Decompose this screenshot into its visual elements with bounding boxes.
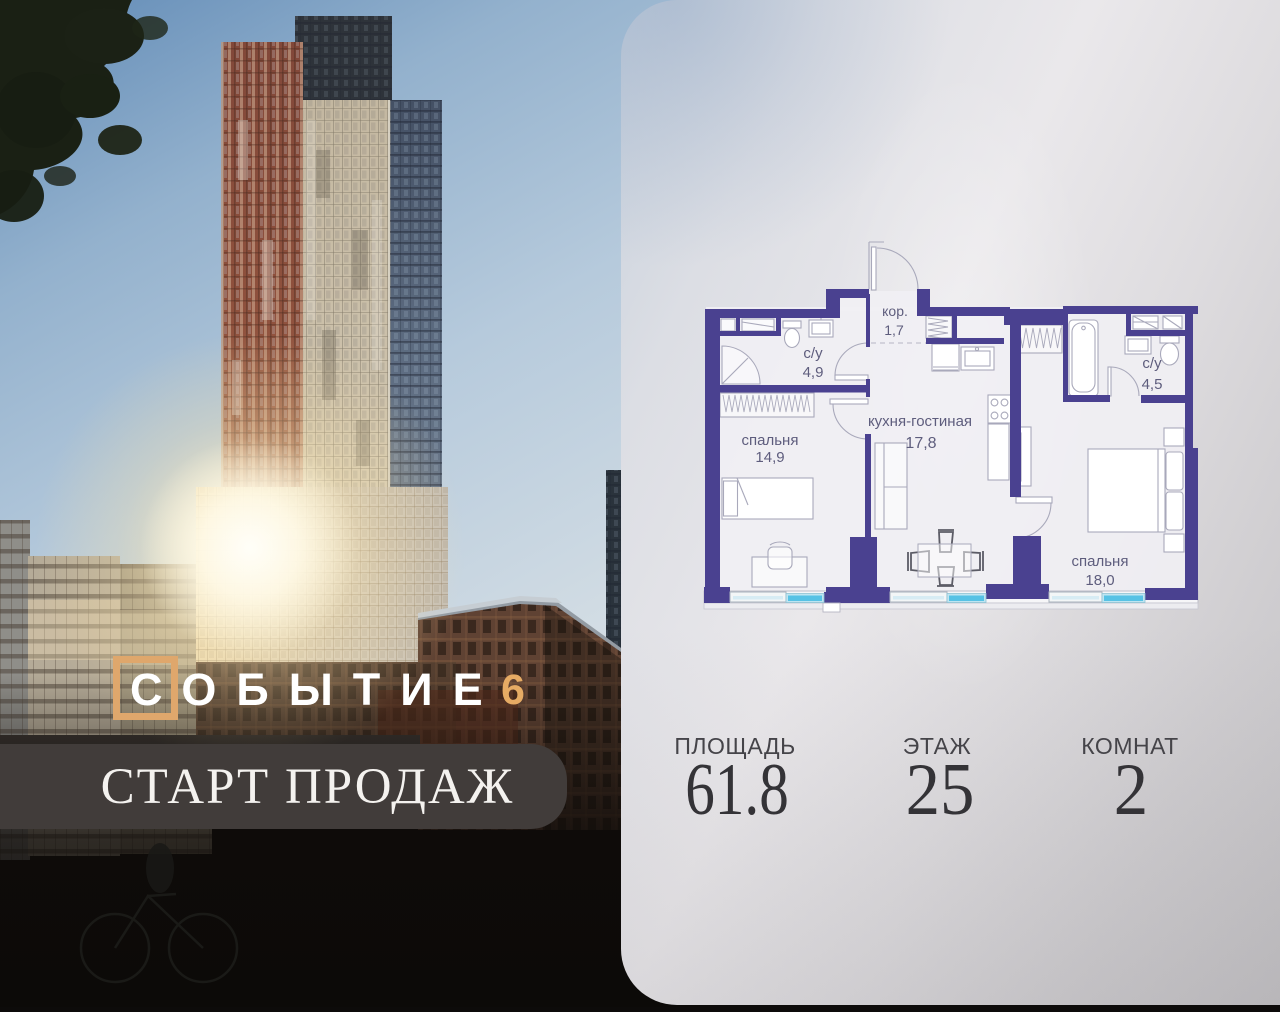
svg-text:спальня: спальня bbox=[742, 432, 799, 449]
svg-text:14,9: 14,9 bbox=[755, 449, 784, 466]
svg-text:спальня: спальня bbox=[1072, 553, 1129, 570]
svg-text:1,7: 1,7 bbox=[884, 322, 904, 338]
svg-text:кор.: кор. bbox=[882, 303, 908, 319]
svg-text:с/у: с/у bbox=[803, 345, 823, 362]
svg-text:18,0: 18,0 bbox=[1085, 572, 1114, 589]
svg-text:кухня-гостиная: кухня-гостиная bbox=[868, 413, 972, 430]
svg-text:с/у: с/у bbox=[1142, 355, 1162, 372]
svg-text:17,8: 17,8 bbox=[905, 435, 936, 452]
svg-text:4,5: 4,5 bbox=[1142, 376, 1163, 393]
svg-text:4,9: 4,9 bbox=[803, 364, 824, 381]
